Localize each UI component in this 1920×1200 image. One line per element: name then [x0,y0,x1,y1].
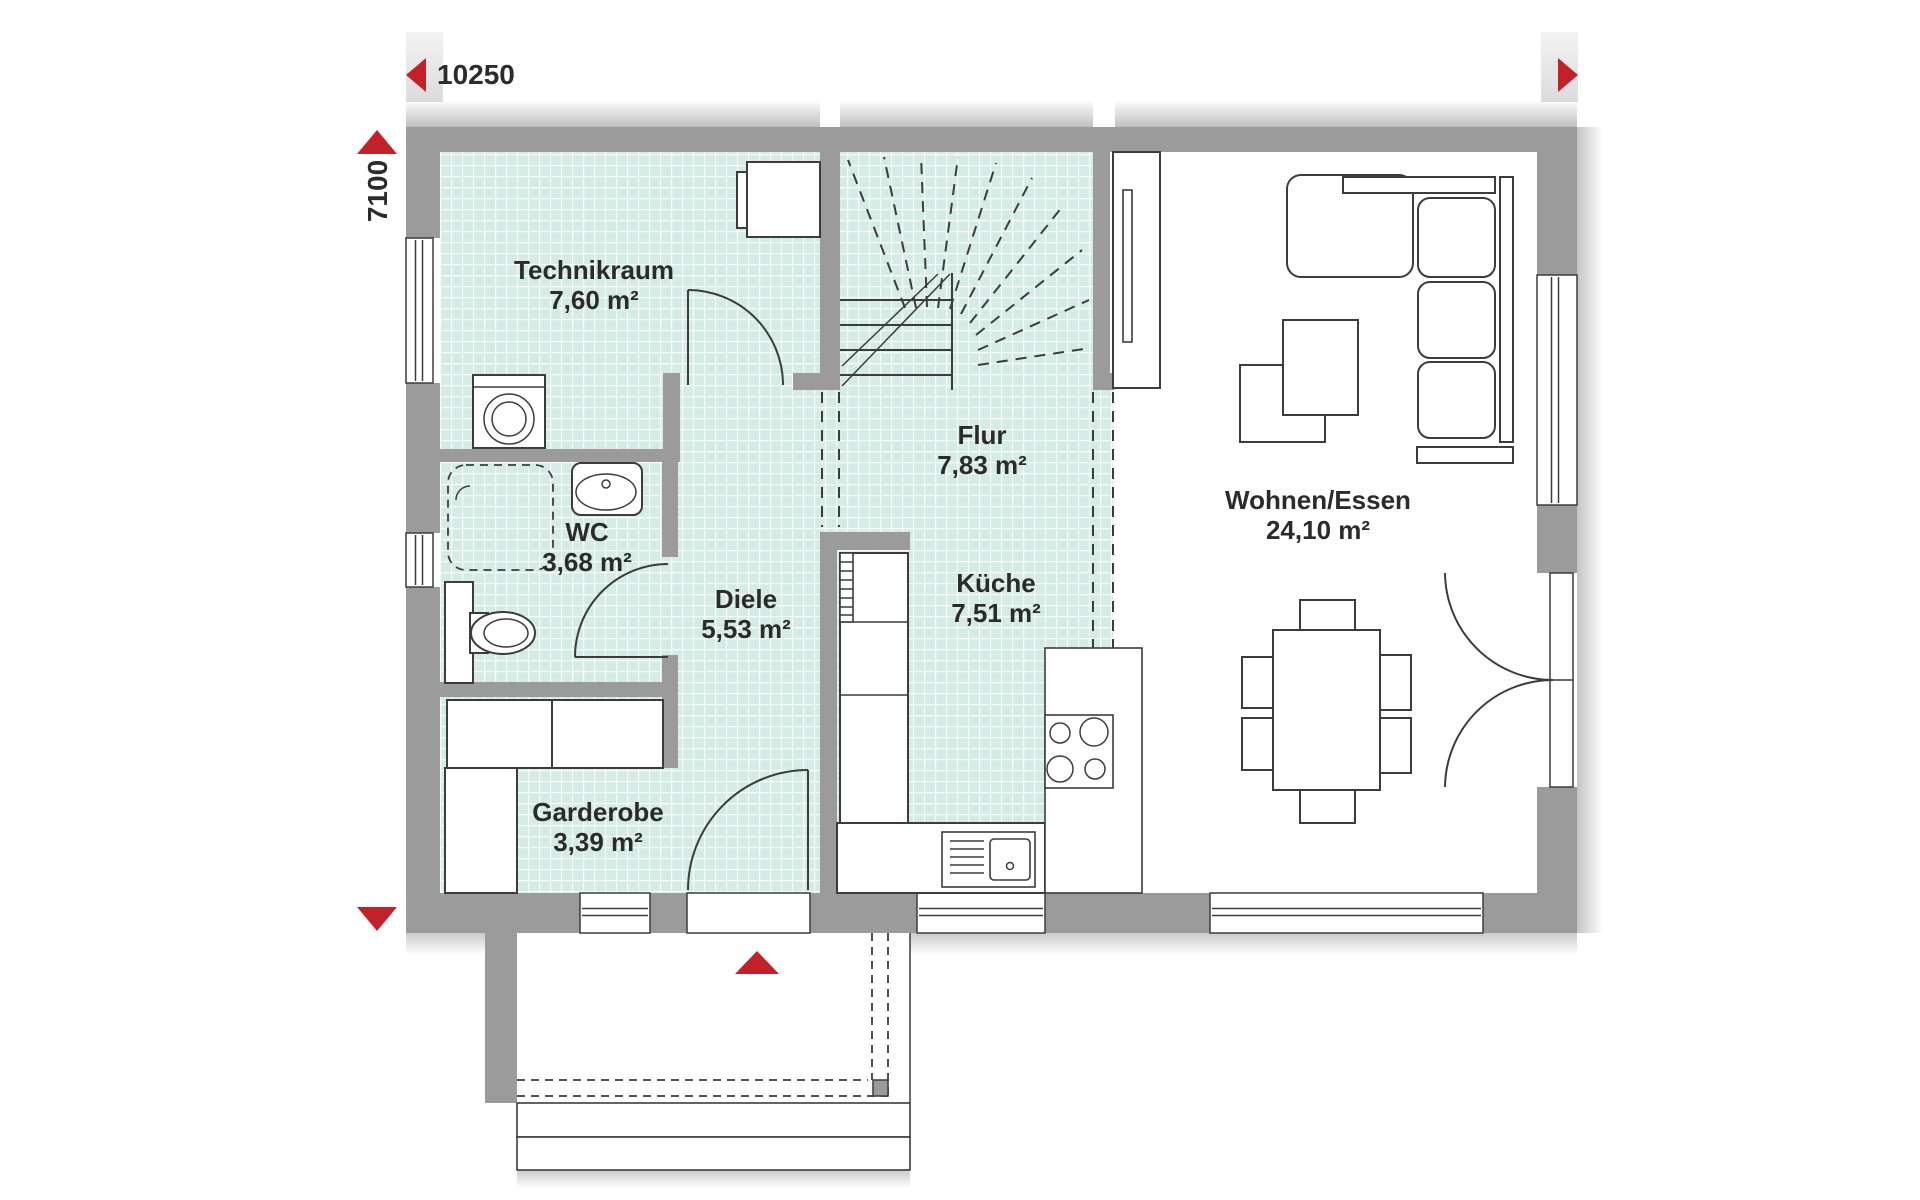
window-wohnen-sued [1210,893,1483,933]
room-name: Wohnen/Essen [1225,485,1411,515]
room-label-wc: WC 3,68 m² [542,517,632,577]
room-area: 7,51 m² [951,598,1041,628]
window-kueche [917,893,1045,933]
room-name: Technikraum [514,255,674,285]
entrance-porch [517,933,910,1170]
room-name: Flur [937,420,1027,450]
window-wohnen-ost [1537,275,1577,505]
room-area: 5,53 m² [701,614,791,644]
kitchen-counter-south [837,823,1045,893]
room-label-wohnen-essen: Wohnen/Essen 24,10 m² [1225,485,1411,545]
kitchen-counter-east [1045,648,1142,893]
hvac-unit [737,162,820,237]
window-garderobe [580,893,650,933]
kitchen-sink [942,832,1035,887]
room-label-flur: Flur 7,83 m² [937,420,1027,480]
room-area: 7,60 m² [514,285,674,315]
sideboard [1113,152,1160,388]
porch-step [517,1103,910,1137]
terrace-french-door [1445,573,1573,787]
room-name: Küche [951,568,1041,598]
floor-plan-canvas: 10250 7100 Technikraum 7,60 m² Flur 7,83… [0,0,1920,1200]
window-technikraum [406,238,433,383]
room-name: WC [542,517,632,547]
dining-table [1273,630,1380,790]
coffee-tables [1240,320,1358,442]
room-area: 3,68 m² [542,547,632,577]
canopy-outline [517,933,888,1096]
room-label-diele: Diele 5,53 m² [701,584,791,644]
room-area: 7,83 m² [937,450,1027,480]
room-area: 24,10 m² [1225,515,1411,545]
room-label-garderobe: Garderobe 3,39 m² [532,797,664,857]
dim-arrow-up-icon [357,130,397,154]
entrance-arrow-icon [735,951,779,974]
porch-step [517,1137,910,1170]
room-label-technikraum: Technikraum 7,60 m² [514,255,674,315]
room-area: 3,39 m² [532,827,664,857]
dimension-height-label: 7100 [362,160,394,222]
dining-set [1242,600,1411,823]
wc-sink [572,463,642,515]
dimension-width-label: 10250 [437,59,515,91]
porch-post [873,1080,888,1096]
cooktop [1045,715,1113,788]
room-name: Diele [701,584,791,614]
dim-arrow-down-icon [357,907,397,931]
dimension-extension-strips [406,32,1578,102]
room-label-kueche: Küche 7,51 m² [951,568,1041,628]
window-wc [406,533,433,587]
room-name: Garderobe [532,797,664,827]
kitchen-tall-units [840,553,908,823]
washing-machine [473,375,545,448]
